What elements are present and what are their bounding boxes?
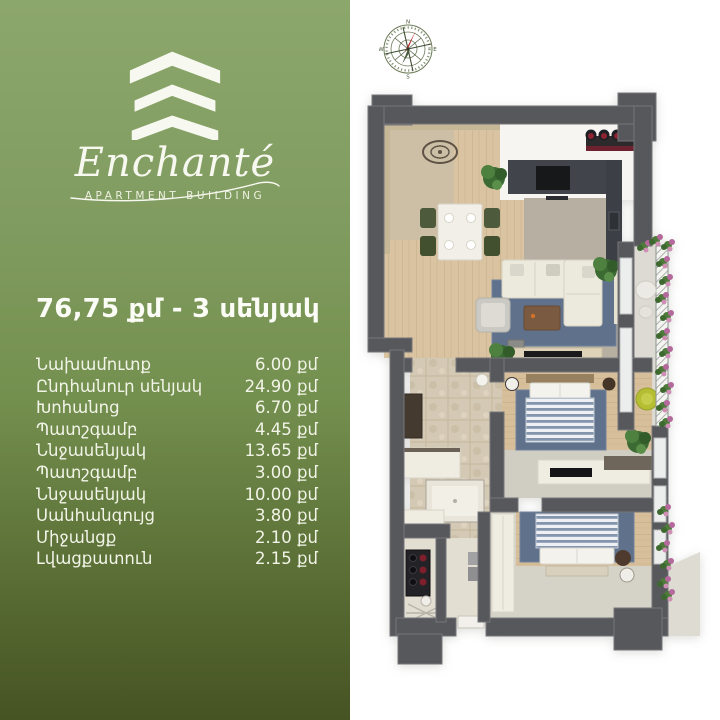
room-row: Պատշգամբ4.45 քմ	[36, 419, 318, 441]
brand-panel: Enchanté APARTMENT BUILDING 76,75 քմ - 3…	[0, 0, 350, 720]
room-area: 10.00 քմ	[245, 484, 318, 506]
wardrobe	[404, 394, 422, 438]
bed-duvet	[526, 398, 594, 442]
compass-e: E	[433, 47, 437, 53]
room-area: 2.15 քմ	[255, 548, 318, 570]
bed-headboard	[526, 374, 594, 383]
coffee-table	[524, 306, 560, 330]
room-label: Ննջասենյակ	[36, 484, 146, 506]
sink	[476, 374, 488, 386]
laptop	[550, 468, 592, 477]
compass-n: N	[406, 20, 410, 26]
room-row: Պատշգամբ3.00 քմ	[36, 462, 318, 484]
room-area: 6.70 քմ	[255, 397, 318, 419]
compass-w: W	[379, 47, 384, 53]
room-row: Խոհանոց6.70 քմ	[36, 397, 318, 419]
room-area: 24.90 քմ	[245, 376, 318, 398]
room-area: 3.00 քմ	[255, 462, 318, 484]
tv	[524, 351, 582, 357]
room-list: Նախամուտք6.00 քմԸնդհանուր սենյակ24.90 քմ…	[36, 354, 318, 570]
building-chevrons-icon	[127, 46, 223, 140]
brand-tagline: APARTMENT BUILDING	[0, 190, 350, 202]
dining-table	[438, 204, 482, 260]
listing-title: 76,75 քմ - 3 սենյակ	[36, 294, 326, 324]
room-label: Լվացքատուն	[36, 548, 153, 570]
room-label: Միջանցք	[36, 527, 116, 549]
room-label: Պատշգամբ	[36, 462, 137, 484]
room-label: Ննջասենյակ	[36, 440, 146, 462]
brand-name: Enchanté	[0, 142, 350, 184]
floorplan-render	[360, 90, 700, 675]
room-label: Պատշգամբ	[36, 419, 137, 441]
room-area: 6.00 քմ	[255, 354, 318, 376]
bed-bench	[546, 566, 608, 576]
room-area: 13.65 քմ	[245, 440, 318, 462]
room-row: Նախամուտք6.00 քմ	[36, 354, 318, 376]
room-area: 4.45 քմ	[255, 419, 318, 441]
brand-logo: Enchanté APARTMENT BUILDING	[0, 46, 350, 202]
room-label: Սանհանգույց	[36, 505, 155, 527]
bed-duvet	[536, 514, 618, 548]
room-area: 3.80 քմ	[255, 505, 318, 527]
room-label: Ընդհանուր սենյակ	[36, 376, 202, 398]
room-row: Ընդհանուր սենյակ24.90 քմ	[36, 376, 318, 398]
room-row: Լվացքատուն2.15 քմ	[36, 548, 318, 570]
room-label: Խոհանոց	[36, 397, 120, 419]
room-row: Միջանցք2.10 քմ	[36, 527, 318, 549]
compass-rose: N E S W	[379, 19, 437, 79]
room-row: Ննջասենյակ13.65 քմ	[36, 440, 318, 462]
room-label: Նախամուտք	[36, 354, 151, 376]
room-area: 2.10 քմ	[255, 527, 318, 549]
cooktop	[536, 166, 570, 190]
cabinet	[404, 510, 444, 524]
room-row: Սանհանգույց3.80 քմ	[36, 505, 318, 527]
compass-s: S	[406, 75, 410, 80]
room-row: Ննջասենյակ10.00 քմ	[36, 484, 318, 506]
closet	[404, 448, 460, 478]
